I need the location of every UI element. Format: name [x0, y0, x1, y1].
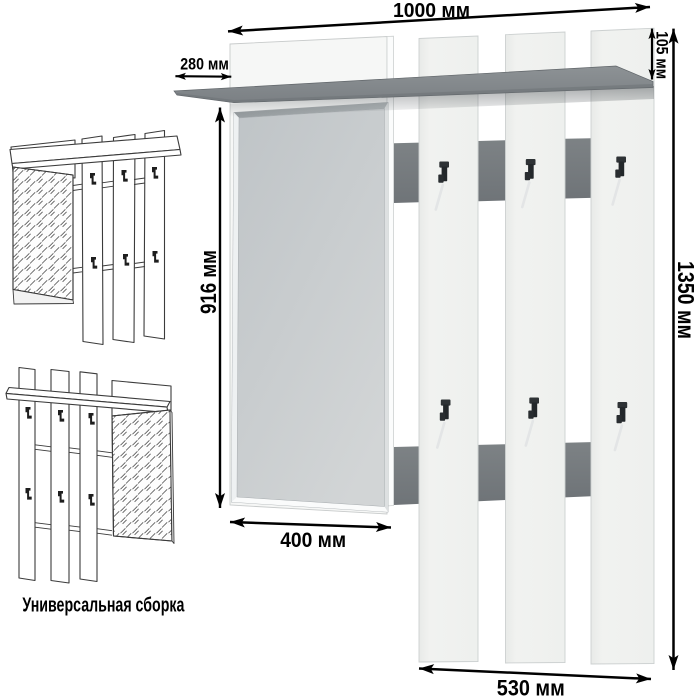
svg-text:1350 мм: 1350 мм — [673, 261, 699, 339]
svg-text:Универсальная сборка: Универсальная сборка — [22, 595, 185, 617]
svg-text:400 мм: 400 мм — [280, 528, 346, 552]
svg-text:1000 мм: 1000 мм — [393, 0, 470, 22]
svg-text:916 мм: 916 мм — [196, 250, 221, 314]
svg-text:105 мм: 105 мм — [652, 31, 670, 79]
svg-text:530 мм: 530 мм — [497, 676, 565, 700]
svg-text:280 мм: 280 мм — [180, 56, 229, 74]
